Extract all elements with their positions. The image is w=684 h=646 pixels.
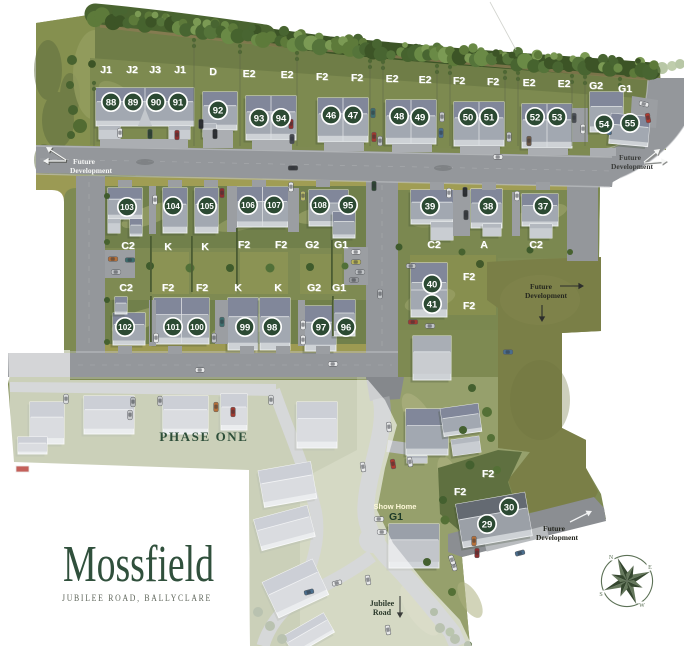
svg-text:102: 102 bbox=[118, 323, 132, 332]
svg-text:41: 41 bbox=[427, 299, 438, 310]
svg-text:96: 96 bbox=[341, 322, 352, 333]
svg-text:98: 98 bbox=[267, 322, 278, 333]
svg-text:F2: F2 bbox=[196, 282, 208, 294]
svg-text:F2: F2 bbox=[275, 239, 287, 251]
svg-text:52: 52 bbox=[530, 112, 541, 123]
svg-text:F2: F2 bbox=[463, 300, 475, 312]
svg-text:C2: C2 bbox=[427, 239, 441, 251]
svg-text:97: 97 bbox=[316, 322, 327, 333]
svg-text:38: 38 bbox=[483, 201, 494, 212]
svg-text:F2: F2 bbox=[454, 486, 466, 498]
svg-text:S: S bbox=[599, 592, 602, 598]
svg-text:G2: G2 bbox=[589, 80, 603, 92]
svg-text:101: 101 bbox=[166, 323, 180, 332]
svg-text:G2: G2 bbox=[307, 282, 321, 294]
svg-text:47: 47 bbox=[348, 110, 359, 121]
svg-text:J1: J1 bbox=[174, 64, 186, 76]
svg-text:53: 53 bbox=[552, 112, 563, 123]
svg-text:48: 48 bbox=[394, 111, 405, 122]
svg-text:88: 88 bbox=[106, 97, 117, 108]
svg-text:A: A bbox=[480, 239, 488, 251]
svg-text:E2: E2 bbox=[419, 74, 432, 86]
svg-text:F2: F2 bbox=[162, 282, 174, 294]
svg-text:F2: F2 bbox=[453, 75, 465, 87]
svg-text:K: K bbox=[201, 241, 209, 253]
svg-text:91: 91 bbox=[173, 97, 184, 108]
svg-text:D: D bbox=[209, 66, 217, 78]
svg-text:29: 29 bbox=[482, 519, 493, 530]
svg-text:105: 105 bbox=[200, 202, 214, 211]
svg-text:107: 107 bbox=[267, 201, 281, 210]
svg-text:51: 51 bbox=[484, 112, 495, 123]
svg-text:Mossfield: Mossfield bbox=[63, 536, 214, 593]
svg-text:K: K bbox=[274, 282, 282, 294]
svg-text:E2: E2 bbox=[281, 69, 294, 81]
svg-text:89: 89 bbox=[128, 97, 139, 108]
svg-text:39: 39 bbox=[425, 201, 436, 212]
svg-text:F2: F2 bbox=[463, 271, 475, 283]
svg-text:Show Home: Show Home bbox=[374, 502, 417, 511]
svg-text:J1: J1 bbox=[100, 64, 112, 76]
svg-text:E2: E2 bbox=[558, 78, 571, 90]
svg-text:Jubilee: Jubilee bbox=[370, 599, 395, 608]
svg-text:F2: F2 bbox=[482, 468, 494, 480]
svg-text:E: E bbox=[648, 565, 652, 571]
svg-text:G1: G1 bbox=[332, 282, 346, 294]
svg-text:C2: C2 bbox=[121, 240, 135, 252]
svg-text:G1: G1 bbox=[389, 511, 403, 523]
svg-text:46: 46 bbox=[326, 110, 337, 121]
svg-text:PHASE ONE: PHASE ONE bbox=[159, 429, 248, 444]
svg-text:37: 37 bbox=[538, 201, 549, 212]
svg-text:F2: F2 bbox=[316, 71, 328, 83]
svg-text:Development: Development bbox=[536, 533, 579, 542]
svg-text:Future: Future bbox=[619, 153, 642, 162]
svg-text:94: 94 bbox=[276, 113, 287, 124]
svg-text:92: 92 bbox=[213, 105, 224, 116]
svg-text:54: 54 bbox=[599, 119, 610, 130]
svg-text:Future: Future bbox=[530, 282, 553, 291]
svg-text:JUBILEE ROAD, BALLYCLARE: JUBILEE ROAD, BALLYCLARE bbox=[62, 593, 212, 603]
svg-text:F2: F2 bbox=[351, 72, 363, 84]
svg-text:108: 108 bbox=[313, 201, 327, 210]
svg-text:30: 30 bbox=[504, 502, 515, 513]
svg-text:G2: G2 bbox=[305, 239, 319, 251]
svg-text:Future: Future bbox=[543, 524, 566, 533]
svg-text:Development: Development bbox=[611, 162, 654, 171]
svg-text:50: 50 bbox=[463, 112, 474, 123]
svg-text:K: K bbox=[164, 241, 172, 253]
svg-text:106: 106 bbox=[241, 201, 255, 210]
svg-text:G1: G1 bbox=[334, 239, 348, 251]
svg-text:40: 40 bbox=[427, 279, 438, 290]
svg-text:100: 100 bbox=[190, 323, 204, 332]
svg-text:C2: C2 bbox=[119, 282, 133, 294]
svg-text:W: W bbox=[639, 603, 645, 609]
svg-text:99: 99 bbox=[240, 322, 251, 333]
svg-text:55: 55 bbox=[625, 118, 636, 129]
svg-text:Future: Future bbox=[73, 157, 96, 166]
svg-text:Development: Development bbox=[70, 166, 113, 175]
svg-text:Development: Development bbox=[525, 291, 568, 300]
svg-text:F2: F2 bbox=[487, 76, 499, 88]
svg-text:C2: C2 bbox=[529, 239, 543, 251]
svg-text:49: 49 bbox=[415, 112, 426, 123]
svg-text:E2: E2 bbox=[243, 68, 256, 80]
svg-text:N: N bbox=[609, 555, 614, 561]
svg-text:103: 103 bbox=[120, 203, 134, 212]
svg-text:90: 90 bbox=[151, 97, 162, 108]
svg-text:F2: F2 bbox=[238, 239, 250, 251]
svg-text:93: 93 bbox=[254, 113, 265, 124]
svg-text:G1: G1 bbox=[618, 83, 632, 95]
svg-text:E2: E2 bbox=[386, 73, 399, 85]
svg-text:K: K bbox=[234, 282, 242, 294]
svg-text:J2: J2 bbox=[126, 64, 138, 76]
svg-text:Road: Road bbox=[373, 608, 392, 617]
svg-text:J3: J3 bbox=[149, 64, 161, 76]
svg-text:E2: E2 bbox=[523, 77, 536, 89]
svg-text:95: 95 bbox=[343, 200, 354, 211]
svg-text:104: 104 bbox=[166, 202, 180, 211]
